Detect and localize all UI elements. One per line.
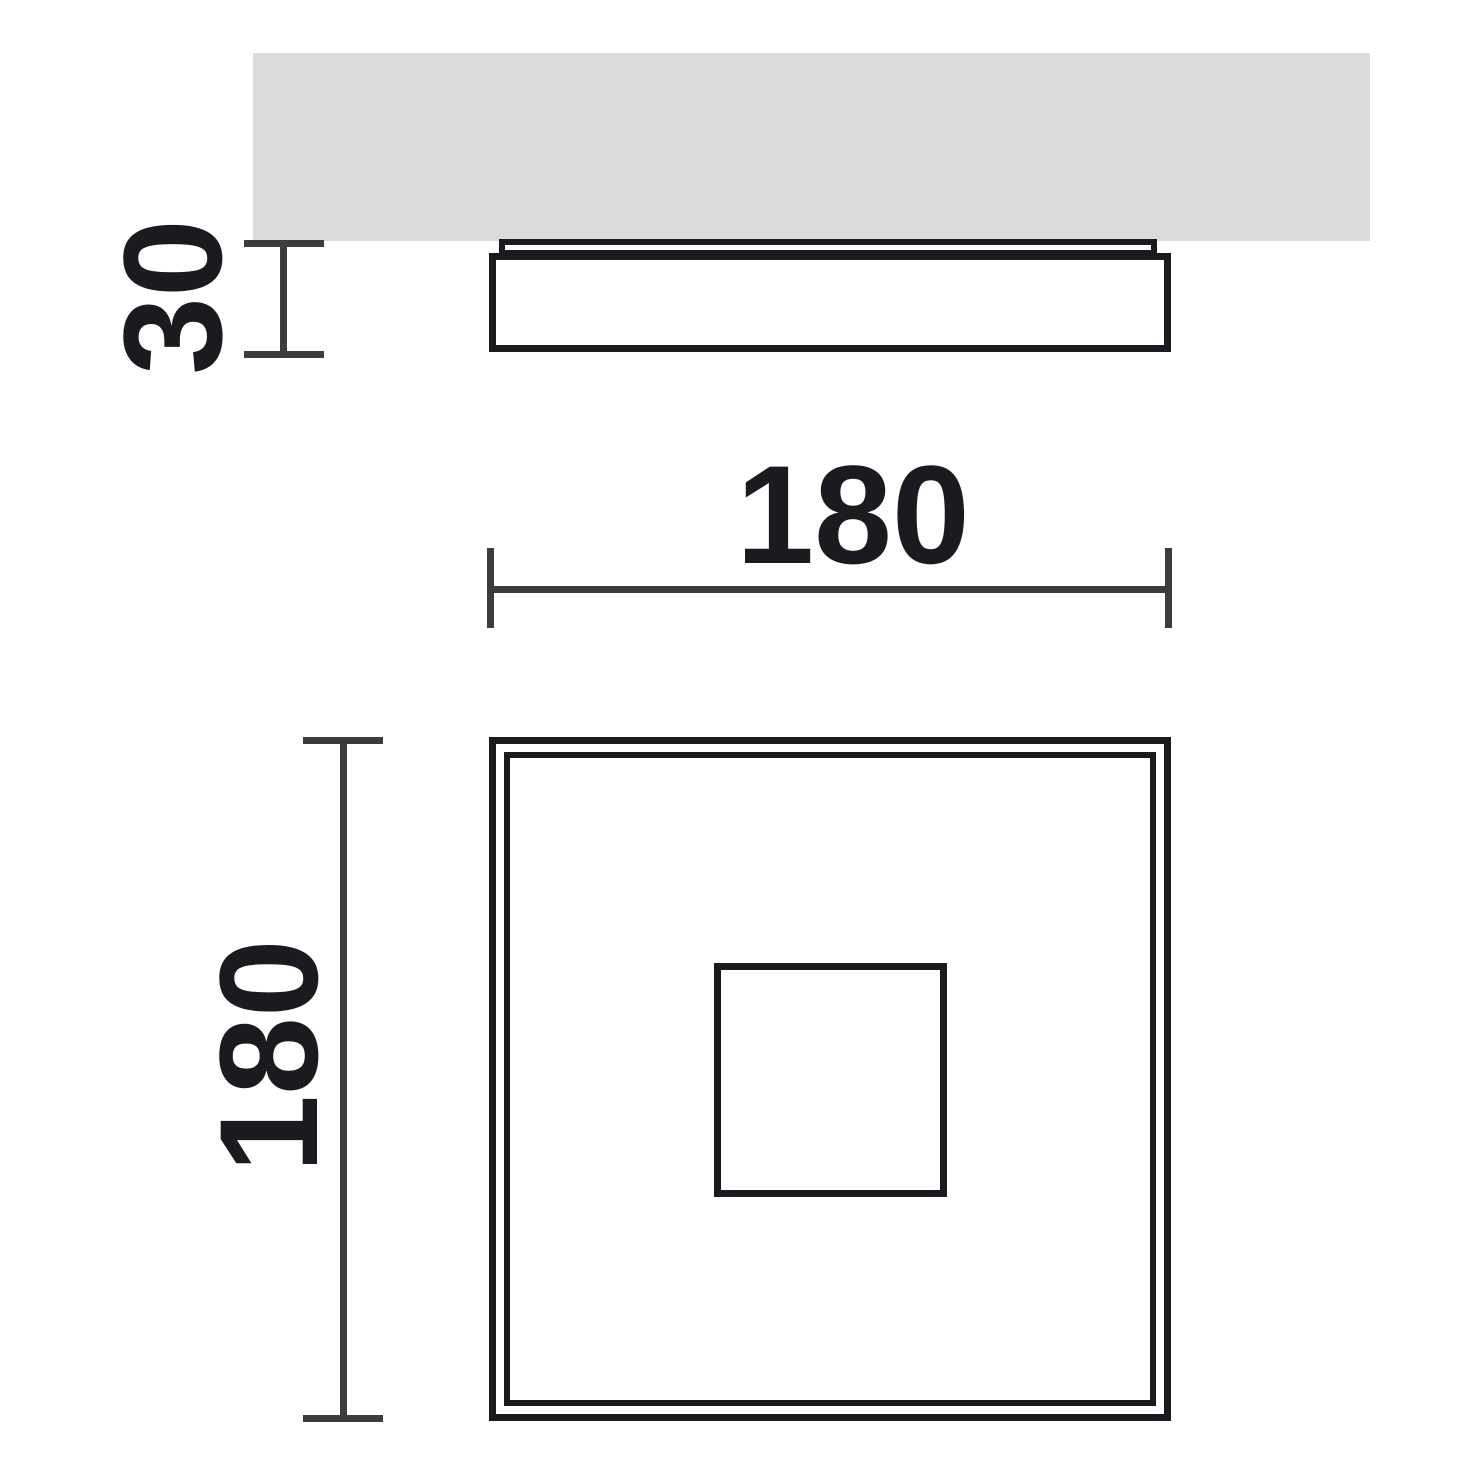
technical-drawing-canvas: 30 180 180 <box>0 0 1476 1476</box>
height-dimension-label: 30 <box>73 197 273 397</box>
front-view-center-square <box>714 963 947 1197</box>
depth-dimension-label: 180 <box>119 906 419 1206</box>
height-dimension-line <box>280 243 287 354</box>
fixture-side-body <box>489 253 1171 352</box>
width-dimension-tick-left <box>487 548 494 628</box>
depth-dimension-tick-bottom <box>303 1415 383 1422</box>
width-dimension-tick-right <box>1165 548 1172 628</box>
depth-dimension-tick-top <box>303 737 383 744</box>
ceiling-slab <box>253 53 1370 241</box>
width-dimension-line <box>490 586 1168 593</box>
width-dimension-label: 180 <box>698 445 1008 585</box>
